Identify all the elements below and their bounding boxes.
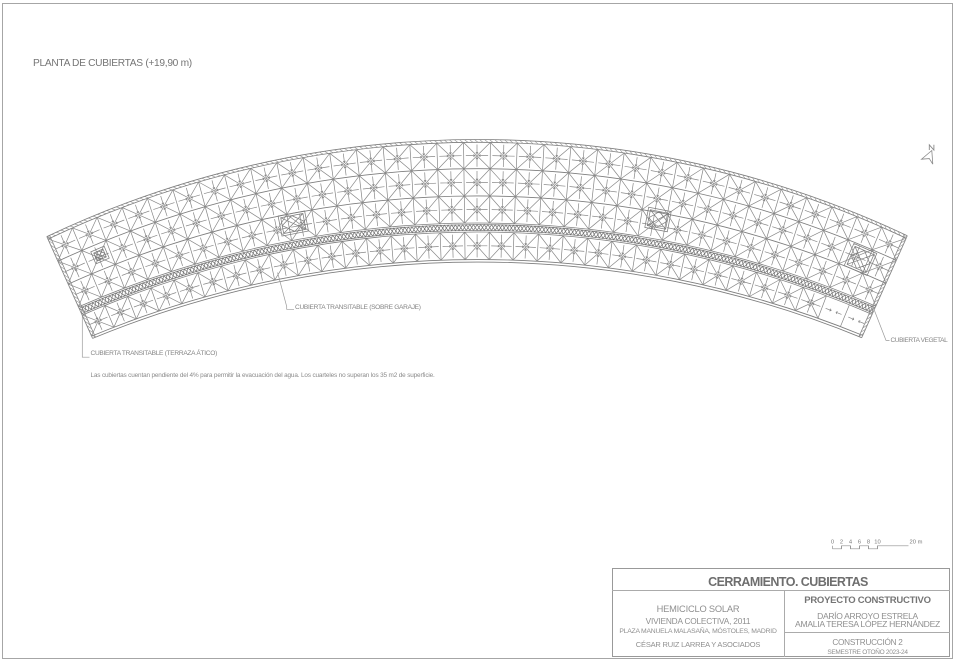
svg-text:2: 2	[840, 540, 843, 546]
svg-text:0: 0	[831, 540, 834, 546]
svg-text:8: 8	[867, 540, 870, 546]
svg-text:6: 6	[858, 540, 861, 546]
svg-text:20 m: 20 m	[910, 540, 923, 546]
svg-text:4: 4	[849, 540, 853, 546]
svg-text:10: 10	[874, 540, 880, 546]
